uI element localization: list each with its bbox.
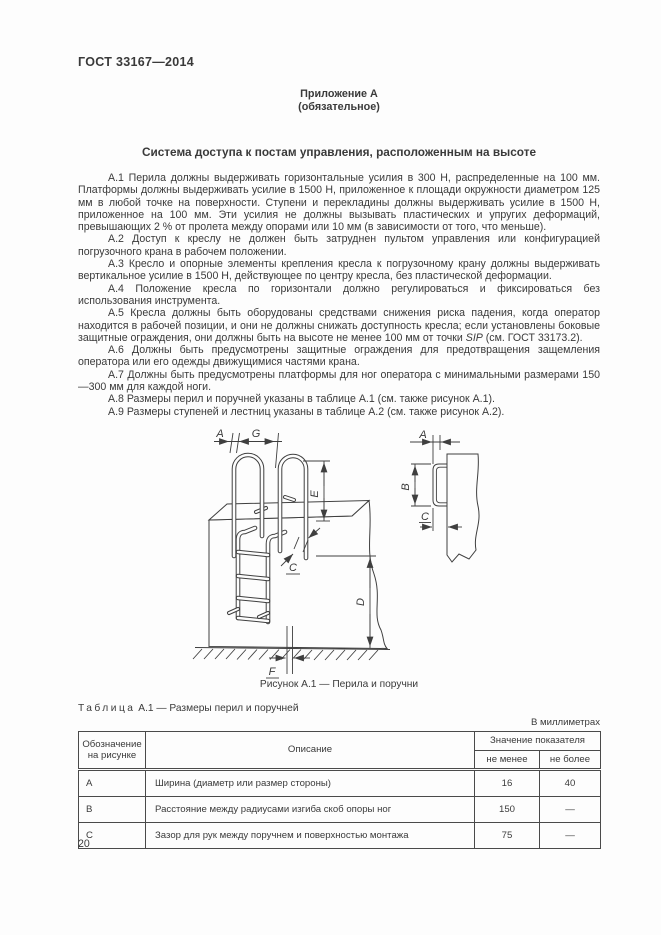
side-view-handle: [410, 435, 479, 562]
dim-label-c: C: [289, 562, 297, 574]
paragraph-a5: А.5 Кресла должны быть оборудованы средс…: [78, 307, 600, 344]
side-dim-label-c: C: [421, 511, 429, 523]
paragraph-a4: А.4 Положение кресла по горизонтали долж…: [78, 283, 600, 308]
row-mark: B: [79, 797, 146, 823]
appendix-subtitle: (обязательное): [78, 101, 600, 114]
appendix-title: Приложение А: [78, 88, 600, 101]
page-number: 20: [78, 838, 90, 850]
dim-label-a: A: [215, 428, 223, 440]
row-max-value: —: [540, 797, 601, 823]
standard-code: ГОСТ 33167—2014: [78, 55, 194, 69]
row-mark: A: [79, 770, 146, 797]
dim-label-e: E: [309, 490, 321, 498]
side-dim-label-b: B: [400, 483, 412, 490]
column-header-max: не более: [540, 750, 601, 770]
figure-a1-ladder-handrails-drawing: A G E C D F A B C: [182, 428, 482, 680]
row-max-value: —: [540, 823, 601, 849]
dim-label-g: G: [252, 428, 261, 440]
figure-caption: Рисунок А.1 — Перила и поручни: [78, 679, 600, 690]
table-caption-text: А.1 — Размеры перил и поручней: [135, 703, 298, 714]
paragraph-a3: А.3 Кресло и опорные элементы крепления …: [78, 258, 600, 283]
paragraph-a6: А.6 Должны быть предусмотрены защитные о…: [78, 344, 600, 369]
row-min-value: 150: [475, 797, 540, 823]
document-page: ГОСТ 33167—2014 Приложение А (обязательн…: [0, 0, 661, 935]
paragraph-a5-tail: (см. ГОСТ 33173.2).: [483, 332, 583, 344]
dim-label-f: F: [269, 666, 277, 678]
row-min-value: 16: [475, 770, 540, 797]
paragraph-a9: А.9 Размеры ступеней и лестниц указаны в…: [78, 406, 600, 418]
platform-structure: [193, 501, 390, 661]
table-row: C Зазор для рук между поручнем и поверхн…: [79, 823, 601, 849]
row-description: Расстояние между радиусами изгиба скоб о…: [146, 797, 475, 823]
dim-label-d: D: [355, 598, 367, 606]
paragraph-a1: А.1 Перила должны выдерживать горизонтал…: [78, 172, 600, 233]
row-description: Зазор для рук между поручнем и поверхнос…: [146, 823, 475, 849]
paragraph-a2: А.2 Доступ к креслу не должен быть затру…: [78, 233, 600, 258]
table-row: B Расстояние между радиусами изгиба скоб…: [79, 797, 601, 823]
paragraph-a7: А.7 Должны быть предусмотрены платформы …: [78, 369, 600, 394]
row-min-value: 75: [475, 823, 540, 849]
table-caption-label: Таблица: [78, 703, 135, 714]
table-row: A Ширина (диаметр или размер стороны) 16…: [79, 770, 601, 797]
column-header-mark: Обозначение на рисунке: [79, 732, 146, 770]
table-a1-handrail-sizes: Обозначение на рисунке Описание Значение…: [78, 731, 601, 849]
body-paragraphs: А.1 Перила должны выдерживать горизонтал…: [78, 172, 600, 418]
units-note: В миллиметрах: [78, 717, 600, 728]
appendix-heading: Приложение А (обязательное): [78, 88, 600, 114]
table-caption: Таблица А.1 — Размеры перил и поручней: [78, 703, 600, 714]
column-header-value: Значение показателя: [475, 732, 601, 751]
row-description: Ширина (диаметр или размер стороны): [146, 770, 475, 797]
section-title: Система доступа к постам управления, рас…: [78, 145, 600, 159]
column-header-min: не менее: [475, 750, 540, 770]
column-header-description: Описание: [146, 732, 475, 770]
sip-term: SIP: [466, 332, 483, 344]
paragraph-a8: А.8 Размеры перил и поручней указаны в т…: [78, 393, 600, 405]
row-max-value: 40: [540, 770, 601, 797]
side-dim-label-a: A: [418, 429, 426, 441]
